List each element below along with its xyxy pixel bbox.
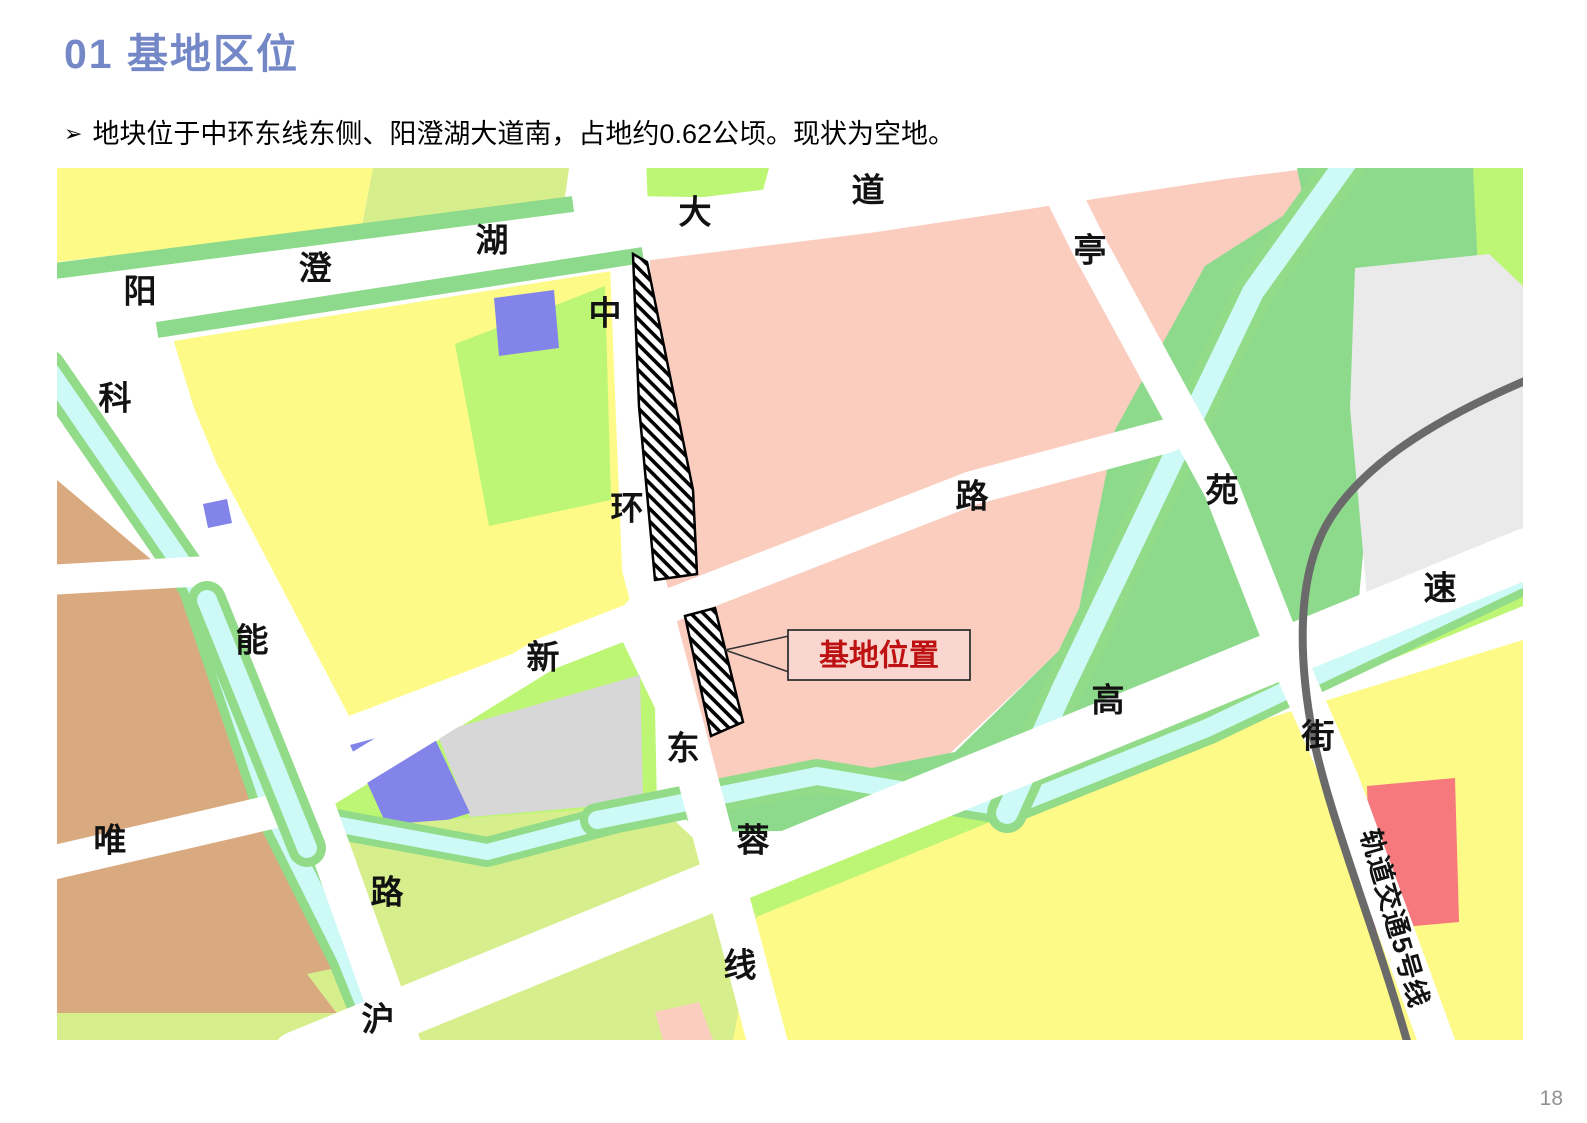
road-label-char-沪蓉高速: 沪 (362, 1001, 395, 1038)
site-location-map: 基地位置 轨道交通5号线 阳澄湖大道中环东线唯新路科能路沪蓉高速亭苑街 (57, 168, 1523, 1040)
road-label-char-亭苑街: 街 (1301, 718, 1335, 755)
road-label-char-唯新路: 新 (527, 639, 560, 676)
road-label-char-亭苑街: 苑 (1206, 472, 1239, 509)
road-label-char-中环东线: 东 (667, 730, 700, 767)
page-number: 18 (1540, 1087, 1563, 1111)
road-left-spur (57, 570, 225, 580)
road-label-char-沪蓉高速: 蓉 (737, 822, 770, 859)
road-label-char-沪蓉高速: 高 (1092, 682, 1125, 719)
road-label-char-阳澄湖大道: 阳 (124, 273, 157, 310)
parcel-purple-tiny (203, 499, 232, 528)
bullet-line: ➢地块位于中环东线东侧、阳澄湖大道南，占地约0.62公顷。现状为空地。 (64, 112, 955, 151)
road-label-char-中环东线: 线 (724, 947, 757, 984)
road-label-char-科能路: 能 (236, 622, 269, 659)
road-label-char-唯新路: 路 (956, 478, 990, 515)
road-label-char-亭苑街: 亭 (1074, 232, 1107, 269)
page-title: 01 基地区位 (64, 20, 299, 80)
bullet-text: 地块位于中环东线东侧、阳澄湖大道南，占地约0.62公顷。现状为空地。 (92, 119, 955, 149)
road-label-char-阳澄湖大道: 湖 (476, 222, 509, 259)
road-label-char-科能路: 路 (371, 874, 405, 911)
road-label-char-阳澄湖大道: 澄 (299, 250, 333, 287)
site-label-text: 基地位置 (819, 639, 939, 673)
road-label-char-阳澄湖大道: 道 (852, 172, 885, 209)
bullet-arrow-icon: ➢ (64, 121, 82, 146)
zoning-map-svg: 基地位置 轨道交通5号线 阳澄湖大道中环东线唯新路科能路沪蓉高速亭苑街 (57, 168, 1523, 1040)
road-label-char-阳澄湖大道: 大 (679, 194, 712, 231)
slide-page: 01 基地区位 ➢地块位于中环东线东侧、阳澄湖大道南，占地约0.62公顷。现状为… (0, 0, 1587, 1123)
road-label-char-唯新路: 唯 (94, 822, 127, 859)
road-label-char-科能路: 科 (99, 380, 132, 417)
road-label-char-中环东线: 环 (611, 490, 644, 527)
road-label-char-中环东线: 中 (589, 295, 622, 332)
parcel-purple-upper (494, 290, 559, 356)
road-label-char-沪蓉高速: 速 (1424, 570, 1457, 607)
